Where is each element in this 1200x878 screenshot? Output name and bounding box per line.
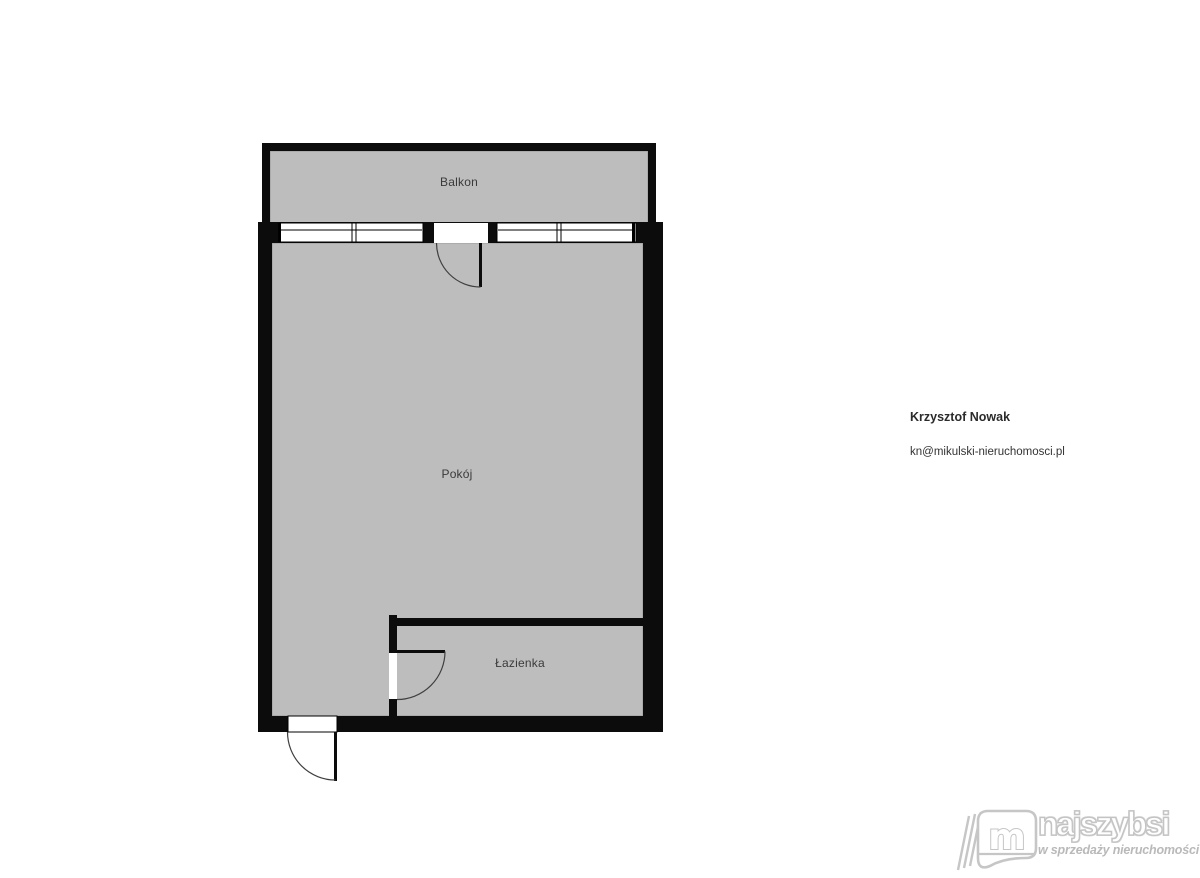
bathroom-door-opening	[389, 653, 397, 700]
bathroom-wall-top	[389, 618, 643, 626]
icon-slash-2	[964, 814, 975, 868]
bathroom-door-jamb-cap	[389, 699, 397, 702]
balcony-door-opening	[434, 223, 488, 243]
wall-right	[643, 222, 663, 732]
brand-watermark: m najszybsi w sprzedaży nieruchomości	[952, 804, 1198, 876]
bathroom-door-leaf	[397, 650, 445, 653]
room-label-balkon: Balkon	[440, 175, 478, 189]
balcony-wall-left	[262, 151, 270, 223]
window-right-end-cap	[632, 223, 635, 242]
floorplan-drawing	[0, 0, 1200, 878]
brand-book-icon: m	[954, 808, 1038, 876]
icon-monogram-m: m	[988, 817, 1026, 858]
icon-slash-1	[958, 816, 969, 870]
entrance-door-swing-arc	[288, 732, 336, 780]
brand-tagline: w sprzedaży nieruchomości	[1038, 843, 1196, 857]
balcony-wall-right	[648, 151, 656, 223]
window-left-end-cap	[278, 223, 281, 242]
balcony-door-leaf	[479, 243, 482, 287]
page-canvas: Balkon Pokój Łazienka Krzysztof Nowak kn…	[0, 0, 1200, 878]
agent-contact-block: Krzysztof Nowak kn@mikulski-nieruchomosc…	[910, 410, 1010, 424]
entrance-door-opening	[288, 716, 337, 732]
brand-name: najszybsi	[1038, 806, 1196, 842]
wall-left	[258, 222, 272, 732]
agent-name: Krzysztof Nowak	[910, 410, 1010, 424]
agent-email: kn@mikulski-nieruchomosci.pl	[910, 446, 1065, 458]
room-label-pokoj: Pokój	[441, 467, 472, 481]
window-right-group	[497, 223, 636, 242]
room-label-lazienka: Łazienka	[495, 656, 545, 670]
balcony-wall-top	[262, 143, 656, 151]
entrance-door-leaf	[334, 732, 337, 781]
brand-text-block: najszybsi w sprzedaży nieruchomości	[1038, 806, 1196, 857]
